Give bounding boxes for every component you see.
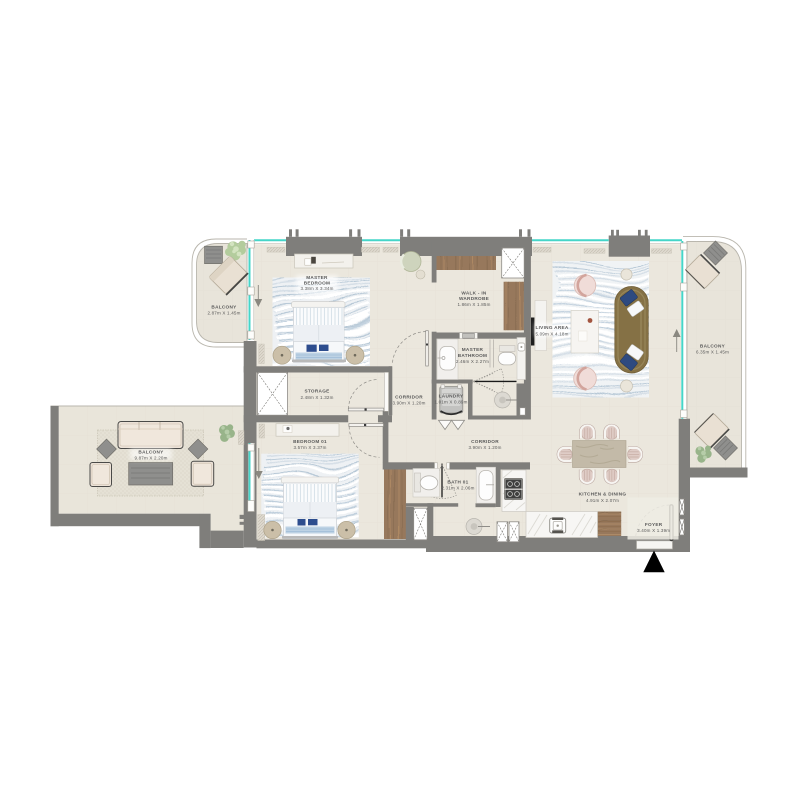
svg-text:MASTER: MASTER — [462, 347, 484, 352]
svg-text:2.46m X 2.27m: 2.46m X 2.27m — [456, 359, 489, 364]
svg-text:9.87m X 2.20m: 9.87m X 2.20m — [134, 456, 167, 461]
svg-text:3.90m X 1.20m: 3.90m X 1.20m — [392, 400, 425, 405]
svg-text:BALCONY: BALCONY — [700, 344, 726, 349]
svg-text:WARDROBE: WARDROBE — [459, 296, 489, 301]
svg-text:MASTER: MASTER — [306, 275, 328, 280]
svg-text:BEDROOM: BEDROOM — [304, 280, 330, 285]
svg-text:BATH 01: BATH 01 — [447, 479, 468, 484]
svg-text:5.09m X 4.18m: 5.09m X 4.18m — [535, 331, 568, 336]
svg-text:2.48m X 1.32m: 2.48m X 1.32m — [300, 395, 333, 400]
svg-text:CORRIDOR: CORRIDOR — [395, 394, 423, 399]
svg-text:BATHROOM: BATHROOM — [458, 353, 488, 358]
svg-text:1.86m X 1.85m: 1.86m X 1.85m — [457, 302, 490, 307]
svg-text:STORAGE: STORAGE — [304, 389, 329, 394]
svg-text:3.38m X 3.34m: 3.38m X 3.34m — [300, 286, 333, 291]
svg-text:2.87m X 1.45m: 2.87m X 1.45m — [207, 310, 240, 315]
svg-text:WALK - IN: WALK - IN — [461, 290, 487, 295]
svg-text:CORRIDOR: CORRIDOR — [471, 439, 499, 444]
svg-text:LIVING AREA: LIVING AREA — [535, 325, 568, 330]
svg-text:2.31m X 2.06m: 2.31m X 2.06m — [441, 485, 474, 490]
svg-text:BALCONY: BALCONY — [211, 304, 237, 309]
svg-text:3.90m X 1.20m: 3.90m X 1.20m — [468, 445, 501, 450]
svg-text:LAUNDRY: LAUNDRY — [439, 393, 464, 398]
svg-text:FOYER: FOYER — [645, 522, 663, 527]
svg-text:3.40m X 1.39m: 3.40m X 1.39m — [637, 528, 670, 533]
svg-text:4.91m X 2.07m: 4.91m X 2.07m — [586, 498, 619, 503]
svg-text:6.35m X 1.45m: 6.35m X 1.45m — [696, 350, 729, 355]
svg-text:BEDROOM 01: BEDROOM 01 — [293, 439, 327, 444]
svg-text:BALCONY: BALCONY — [138, 449, 164, 454]
svg-text:1.01m X 0.89m: 1.01m X 0.89m — [434, 399, 467, 404]
svg-text:3.57m X 3.37m: 3.57m X 3.37m — [293, 445, 326, 450]
svg-text:KITCHEN & DINING: KITCHEN & DINING — [579, 492, 627, 497]
